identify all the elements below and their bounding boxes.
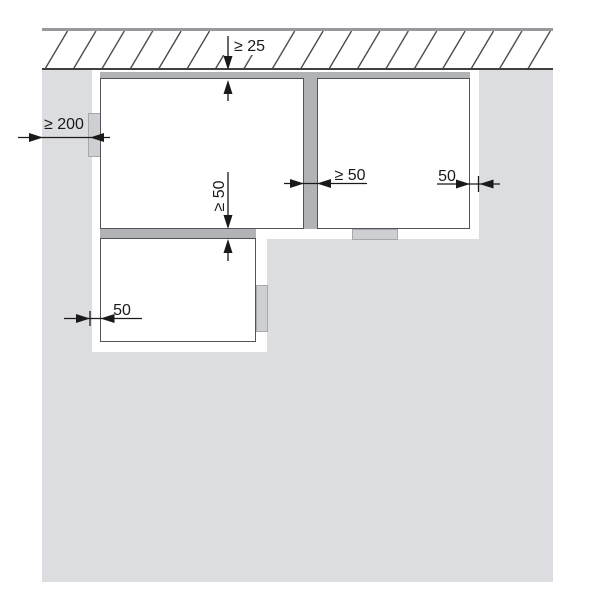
mounting-tab-right-box-bottom: [352, 229, 398, 240]
clearance-diagram: ≥ 25 ≥ 200 ≥ 50 50: [0, 0, 600, 600]
mounting-tab-lower-box-right: [256, 285, 268, 332]
ceiling-hatch: [42, 31, 553, 69]
arrow-right-icon: [29, 133, 43, 142]
appliance-box-lower: [100, 238, 256, 342]
appliance-box-right: [317, 78, 470, 229]
spacer-bar-below-left-unit: [100, 229, 256, 238]
ceiling-hatch-lines: [42, 31, 553, 69]
spacer-bar-between-units: [304, 78, 317, 229]
appliance-box-left: [100, 78, 304, 229]
